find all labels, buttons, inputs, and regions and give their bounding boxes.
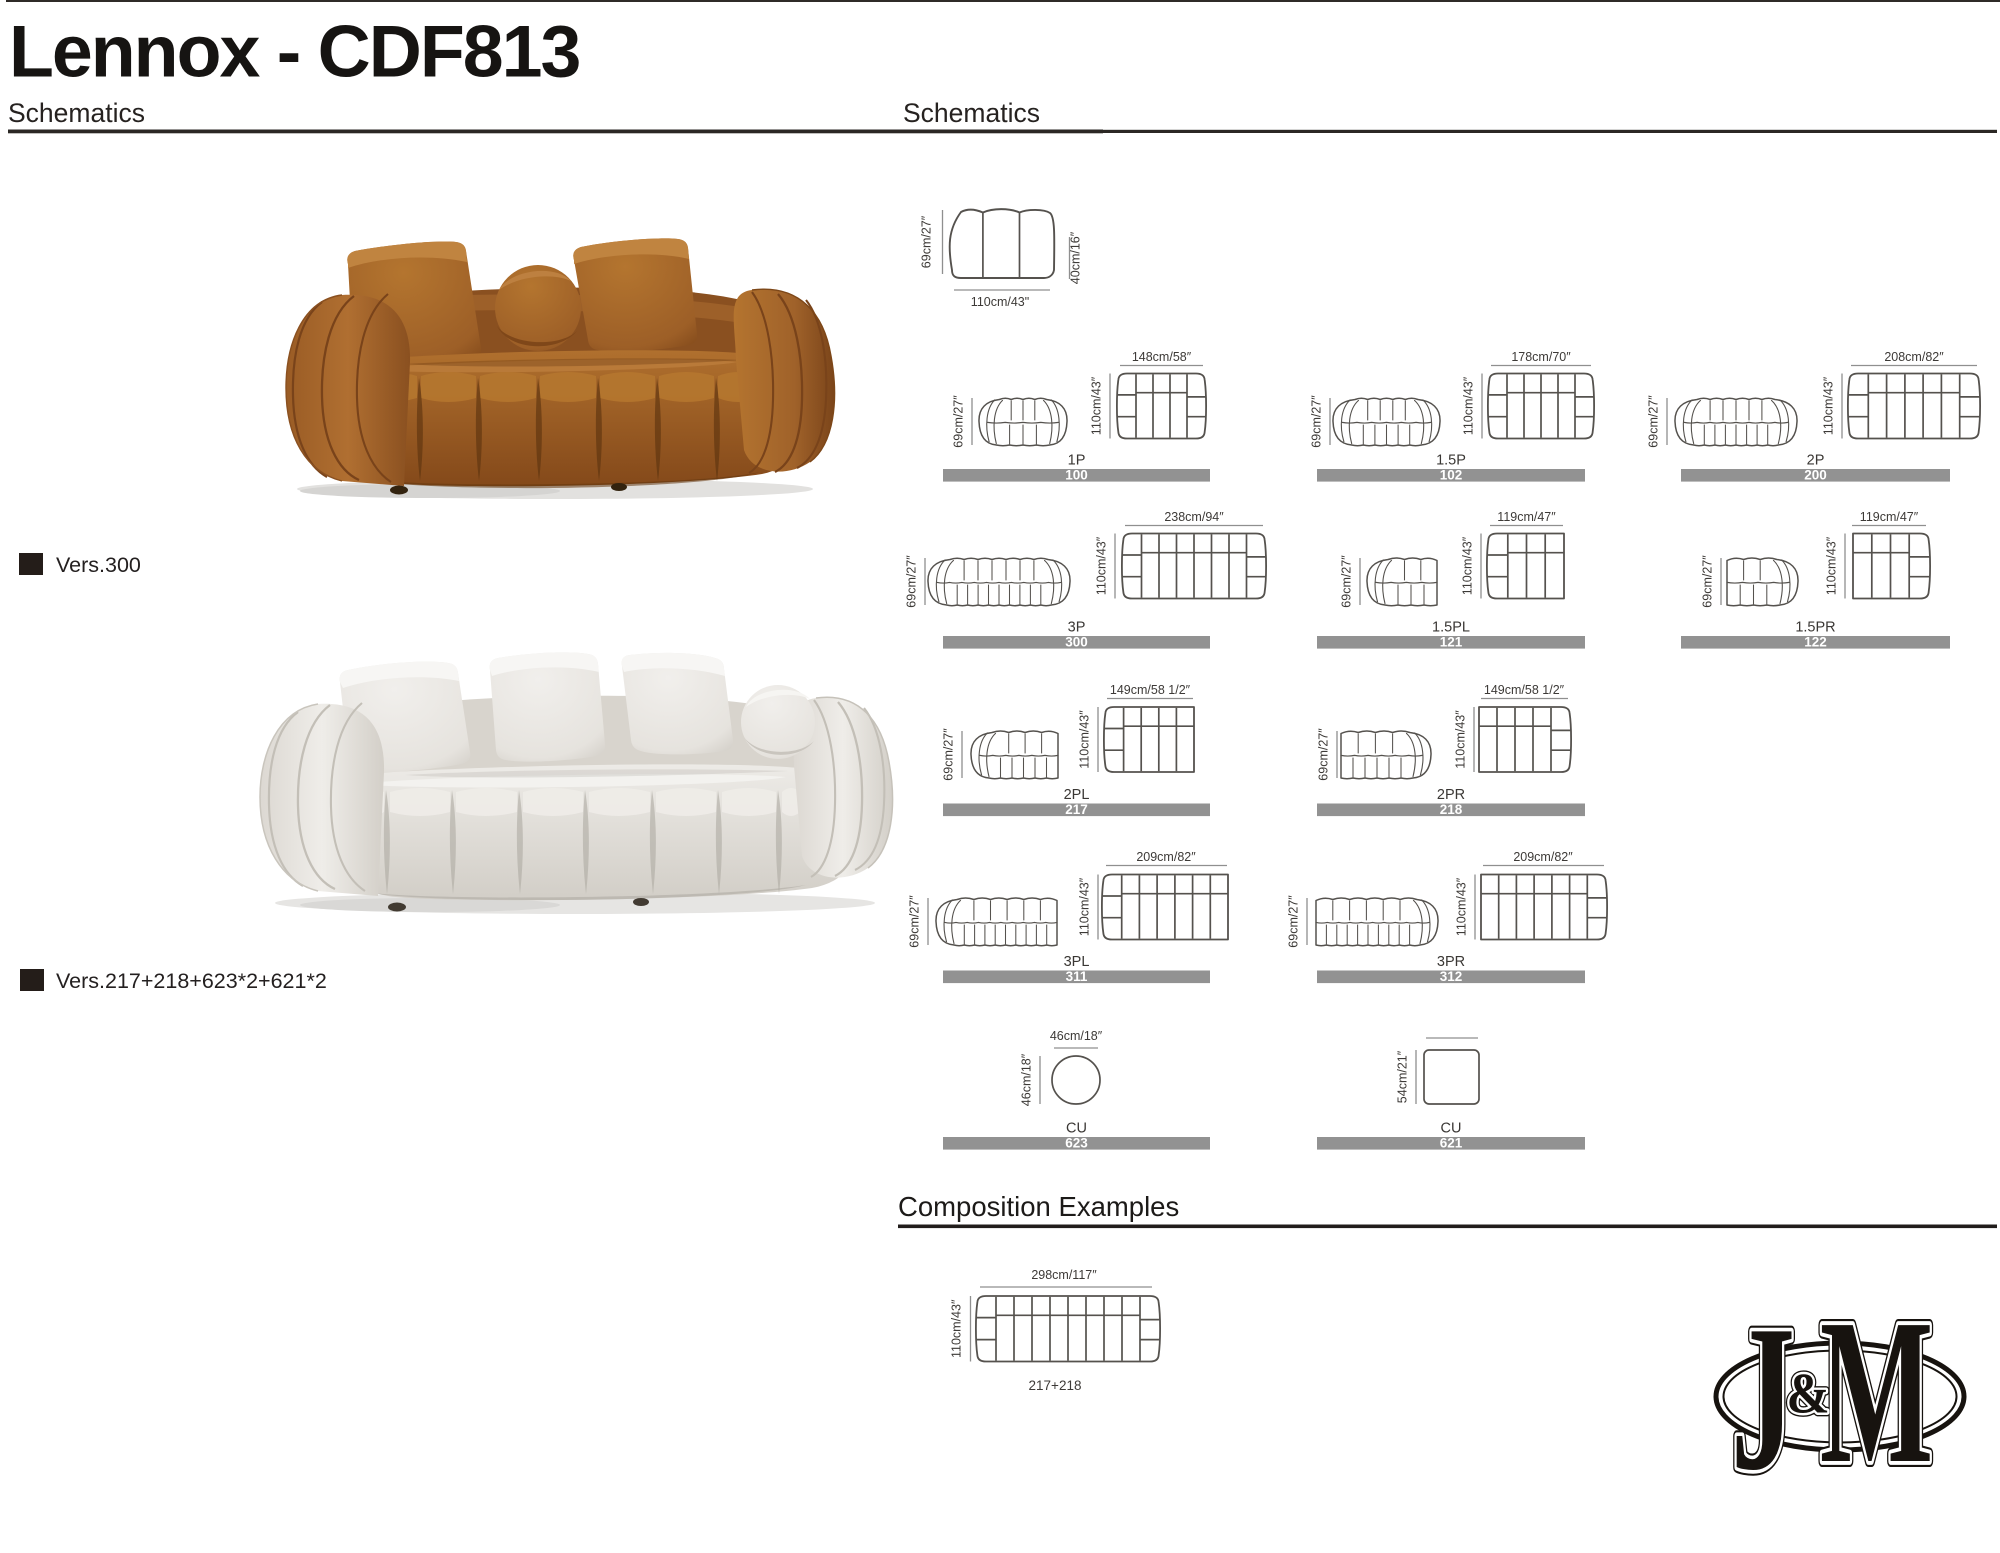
svg-text:Lennox - CDF813: Lennox - CDF813 [9, 10, 579, 93]
svg-text:100: 100 [1065, 468, 1088, 483]
svg-text:Schematics: Schematics [8, 98, 145, 128]
svg-text:300: 300 [1065, 635, 1088, 650]
svg-text:69cm/27″: 69cm/27″ [952, 395, 966, 448]
svg-text:621: 621 [1440, 1136, 1463, 1151]
svg-text:110cm/43": 110cm/43" [971, 295, 1029, 309]
svg-text:69cm/27″: 69cm/27″ [1317, 728, 1331, 781]
svg-text:110cm/43″: 110cm/43″ [1822, 376, 1836, 435]
svg-text:238cm/94″: 238cm/94″ [1164, 510, 1224, 524]
svg-text:54cm/21″: 54cm/21″ [1396, 1050, 1410, 1103]
svg-text:110cm/43″: 110cm/43″ [1095, 536, 1109, 595]
svg-text:110cm/43″: 110cm/43″ [1454, 710, 1468, 769]
svg-text:CU: CU [1066, 1121, 1087, 1137]
svg-text:217+218: 217+218 [1029, 1378, 1082, 1393]
svg-text:209cm/82″: 209cm/82″ [1136, 850, 1196, 864]
svg-text:148cm/58″: 148cm/58″ [1132, 350, 1192, 364]
svg-text:209cm/82″: 209cm/82″ [1513, 850, 1573, 864]
svg-text:2P: 2P [1807, 453, 1825, 469]
svg-text:M: M [1820, 1276, 1933, 1506]
svg-text:69cm/27″: 69cm/27″ [905, 555, 919, 608]
svg-text:311: 311 [1066, 969, 1088, 984]
svg-text:69cm/27″: 69cm/27″ [1647, 395, 1661, 448]
svg-text:Schematics: Schematics [903, 98, 1040, 128]
svg-text:69cm/27″: 69cm/27″ [942, 728, 956, 781]
svg-text:3PR: 3PR [1437, 954, 1465, 970]
svg-text:110cm/43″: 110cm/43″ [1462, 376, 1476, 435]
svg-text:46cm/18″: 46cm/18″ [1020, 1053, 1034, 1106]
svg-text:110cm/43″: 110cm/43″ [950, 1299, 964, 1358]
svg-text:69cm/27″: 69cm/27″ [1340, 555, 1354, 608]
svg-text:69cm/27″: 69cm/27″ [908, 895, 922, 948]
svg-text:122: 122 [1804, 635, 1827, 650]
svg-text:102: 102 [1440, 468, 1463, 483]
svg-text:Vers.300: Vers.300 [56, 553, 141, 577]
svg-text:CU: CU [1441, 1121, 1462, 1137]
svg-text:623: 623 [1065, 1136, 1088, 1151]
svg-text:208cm/82″: 208cm/82″ [1884, 350, 1944, 364]
svg-text:110cm/43″: 110cm/43″ [1090, 376, 1104, 435]
svg-text:69cm/27″: 69cm/27″ [1310, 395, 1324, 448]
svg-text:121: 121 [1440, 635, 1463, 650]
svg-text:40cm/16″: 40cm/16″ [1069, 231, 1083, 284]
svg-text:2PR: 2PR [1437, 787, 1465, 803]
svg-text:2PL: 2PL [1064, 787, 1090, 803]
svg-text:Composition Examples: Composition Examples [898, 1191, 1179, 1222]
svg-text:110cm/43″: 110cm/43″ [1461, 536, 1475, 595]
svg-text:110cm/43″: 110cm/43″ [1455, 877, 1469, 936]
svg-text:1P: 1P [1068, 453, 1086, 469]
svg-text:1.5P: 1.5P [1436, 453, 1466, 469]
svg-text:110cm/43″: 110cm/43″ [1078, 877, 1092, 936]
svg-text:119cm/47″: 119cm/47″ [1497, 510, 1556, 524]
svg-text:1.5PL: 1.5PL [1432, 620, 1470, 636]
svg-text:218: 218 [1440, 802, 1463, 817]
svg-text:69cm/27″: 69cm/27″ [1701, 555, 1715, 608]
svg-text:298cm/117″: 298cm/117″ [1031, 1268, 1097, 1282]
svg-text:3PL: 3PL [1064, 954, 1090, 970]
svg-text:69cm/27″: 69cm/27″ [1287, 895, 1301, 948]
svg-text:200: 200 [1804, 468, 1827, 483]
svg-text:3P: 3P [1068, 620, 1086, 636]
svg-text:119cm/47″: 119cm/47″ [1860, 510, 1919, 524]
svg-text:69cm/27″: 69cm/27″ [920, 215, 934, 268]
svg-text:110cm/43″: 110cm/43″ [1078, 710, 1092, 769]
svg-text:46cm/18″: 46cm/18″ [1050, 1029, 1103, 1043]
svg-text:178cm/70″: 178cm/70″ [1511, 350, 1571, 364]
svg-text:110cm/43″: 110cm/43″ [1825, 536, 1839, 595]
svg-text:Vers.217+218+623*2+621*2: Vers.217+218+623*2+621*2 [56, 969, 327, 993]
svg-text:149cm/58 1/2″: 149cm/58 1/2″ [1484, 683, 1565, 697]
svg-text:312: 312 [1440, 969, 1463, 984]
svg-text:1.5PR: 1.5PR [1795, 620, 1835, 636]
svg-text:217: 217 [1065, 802, 1088, 817]
svg-text:149cm/58 1/2″: 149cm/58 1/2″ [1110, 683, 1191, 697]
